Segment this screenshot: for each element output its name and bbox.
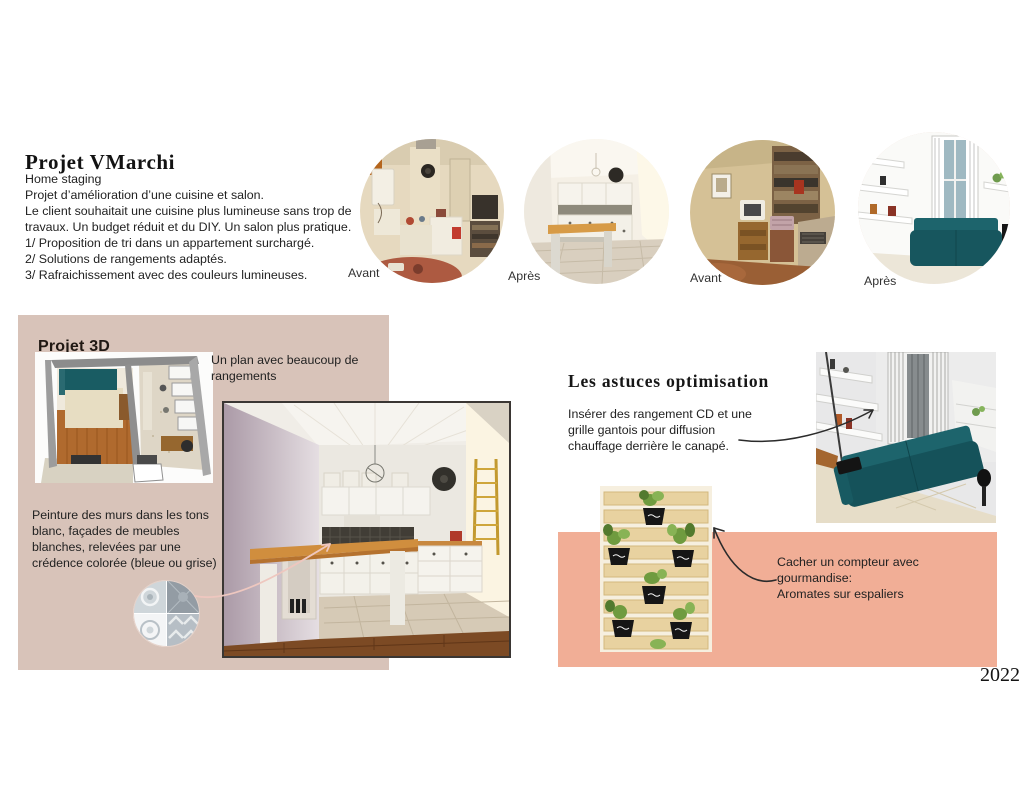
intro-line: Le client souhaitait une cuisine plus lu… bbox=[25, 203, 365, 219]
sofa-3d-render bbox=[816, 352, 996, 523]
intro-line: Home staging bbox=[25, 171, 365, 187]
herb-pallet-photo bbox=[600, 486, 712, 652]
astuces-heading: Les astuces optimisation bbox=[568, 371, 769, 392]
compteur-note-line: Aromates sur espaliers bbox=[777, 586, 952, 602]
paint-note-line: crédence colorée (bleue ou grise) bbox=[32, 555, 232, 571]
photo-label-apres-kitchen: Après bbox=[508, 269, 540, 283]
cd-note-line: chauffage derrière le canapé. bbox=[568, 438, 758, 454]
compteur-note: Cacher un compteur avec gourmandise: Aro… bbox=[777, 554, 952, 602]
compteur-note-line: gourmandise: bbox=[777, 570, 952, 586]
kitchen-after-photo bbox=[524, 139, 669, 284]
paint-note-line: blanc, façades de meubles bbox=[32, 523, 232, 539]
intro-line: 3/ Rafraichissement avec des couleurs lu… bbox=[25, 267, 365, 283]
paint-note: Peinture des murs dans les tons blanc, f… bbox=[32, 507, 232, 571]
intro-line: Projet d’amélioration d’une cuisine et s… bbox=[25, 187, 365, 203]
intro-line: 2/ Solutions de rangements adaptés. bbox=[25, 251, 365, 267]
plan-note-line: Un plan avec beaucoup de bbox=[211, 352, 371, 368]
compteur-note-line: Cacher un compteur avec bbox=[777, 554, 952, 570]
intro-text: Home staging Projet d’amélioration d’une… bbox=[25, 171, 365, 283]
portfolio-page: Projet VMarchi Home staging Projet d’amé… bbox=[0, 0, 1024, 786]
cd-note: Insérer des rangement CD et une grille g… bbox=[568, 406, 758, 454]
salon-before-photo bbox=[690, 140, 835, 285]
cd-note-line: grille gantois pour diffusion bbox=[568, 422, 758, 438]
kitchen-before-photo bbox=[360, 139, 504, 283]
paint-note-line: Peinture des murs dans les tons bbox=[32, 507, 232, 523]
photo-label-avant-salon: Avant bbox=[690, 271, 721, 285]
paint-note-line: blanches, relevées par une bbox=[32, 539, 232, 555]
intro-line: 1/ Proposition de tri dans un appartemen… bbox=[25, 235, 365, 251]
floor-plan-render bbox=[35, 352, 213, 483]
kitchen-3d-render bbox=[222, 401, 511, 658]
photo-label-apres-salon: Après bbox=[864, 274, 896, 288]
plan-note-line: rangements bbox=[211, 368, 371, 384]
intro-line: travaux. Un budget réduit et du DIY. Un … bbox=[25, 219, 365, 235]
cd-note-line: Insérer des rangement CD et une bbox=[568, 406, 758, 422]
tile-swatch-image bbox=[133, 580, 200, 647]
plan-note: Un plan avec beaucoup de rangements bbox=[211, 352, 371, 384]
salon-after-render bbox=[858, 132, 1010, 284]
year-label: 2022 bbox=[980, 664, 1020, 687]
